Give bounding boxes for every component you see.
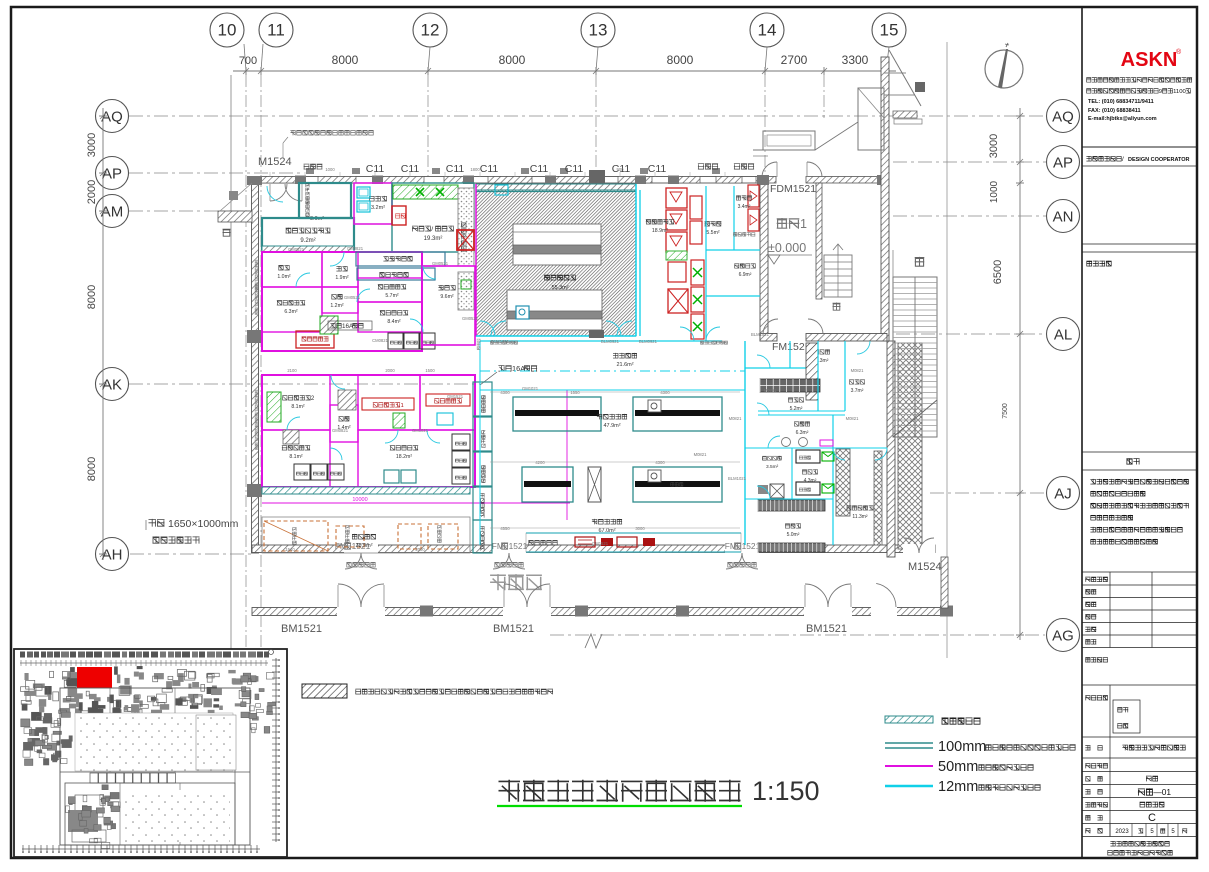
svg-text:8000: 8000: [86, 457, 98, 481]
svg-text:AN: AN: [1053, 209, 1074, 226]
svg-text:16A: 16A: [512, 364, 525, 373]
svg-text:C11: C11: [530, 163, 549, 175]
svg-text:3.4m²: 3.4m²: [738, 204, 751, 210]
svg-text:C11: C11: [565, 163, 584, 175]
svg-text:M1524: M1524: [908, 561, 942, 573]
svg-text:5.7m²: 5.7m²: [385, 293, 399, 299]
svg-text:11: 11: [267, 21, 285, 40]
svg-text:12mm: 12mm: [938, 779, 978, 795]
svg-text:C11: C11: [480, 163, 499, 175]
svg-text:BM1521: BM1521: [281, 623, 322, 635]
svg-text:18.9m²: 18.9m²: [652, 228, 668, 234]
svg-text:7500: 7500: [1002, 403, 1009, 419]
svg-text:9.2m²: 9.2m²: [300, 238, 315, 244]
svg-text:/: /: [1122, 156, 1124, 163]
svg-text:1000: 1000: [989, 180, 1000, 203]
svg-text:10000: 10000: [352, 497, 367, 503]
svg-text:BLM1021: BLM1021: [728, 476, 747, 481]
svg-text:8.4m²: 8.4m²: [387, 319, 401, 325]
svg-text:28.9m²: 28.9m²: [355, 543, 372, 549]
svg-text:AJ: AJ: [1054, 486, 1072, 503]
svg-text:1:150: 1:150: [752, 776, 820, 806]
svg-text:AL: AL: [1054, 327, 1072, 344]
svg-text:AQ: AQ: [101, 109, 123, 126]
svg-text:4200: 4200: [535, 460, 545, 465]
svg-text:GM1521: GM1521: [447, 394, 464, 399]
svg-text:4300: 4300: [660, 390, 670, 395]
svg-text:3000: 3000: [988, 134, 1000, 158]
svg-text:8.1m²: 8.1m²: [291, 404, 305, 410]
svg-text:M0821: M0821: [846, 416, 859, 421]
svg-text:6.3m²: 6.3m²: [284, 309, 298, 315]
svg-text:4300: 4300: [500, 390, 510, 395]
svg-text:8000: 8000: [667, 53, 694, 67]
svg-text:1.9m²: 1.9m²: [335, 275, 349, 281]
svg-text:10: 10: [218, 21, 237, 40]
svg-text:19.3m²: 19.3m²: [424, 236, 443, 242]
svg-text:1650×1000mm: 1650×1000mm: [168, 518, 239, 530]
svg-text:/: /: [431, 226, 433, 233]
svg-text:FAX: (010) 68838411: FAX: (010) 68838411: [1088, 108, 1141, 114]
svg-text:1550: 1550: [570, 390, 580, 395]
svg-text:2000: 2000: [385, 368, 395, 373]
svg-text:GM0521: GM0521: [462, 316, 479, 321]
svg-text:8000: 8000: [499, 53, 526, 67]
svg-text:12: 12: [421, 21, 440, 40]
svg-text:ASKN: ASKN: [1121, 49, 1178, 71]
svg-text:M1524: M1524: [258, 156, 292, 168]
svg-text:1500: 1500: [425, 368, 435, 373]
svg-text:9.6m²: 9.6m²: [440, 294, 454, 300]
svg-text:18.2m²: 18.2m²: [396, 454, 412, 460]
svg-text:BM1521: BM1521: [806, 623, 847, 635]
svg-text:3.2m²: 3.2m²: [371, 205, 385, 211]
svg-text:1100: 1100: [1173, 89, 1186, 95]
svg-text:2023: 2023: [1115, 829, 1129, 835]
svg-text:±0.000: ±0.000: [768, 241, 806, 255]
svg-text:5.5m²: 5.5m²: [706, 230, 720, 236]
svg-text:2000: 2000: [86, 180, 98, 204]
svg-text:FDM1521: FDM1521: [770, 183, 816, 195]
svg-text:6.3m²: 6.3m²: [796, 430, 809, 436]
svg-text:2700: 2700: [781, 53, 808, 67]
svg-text:1540: 1540: [285, 547, 295, 552]
svg-text:1.0m²: 1.0m²: [277, 274, 291, 280]
svg-text:AP: AP: [102, 166, 122, 183]
svg-text:47.9m²: 47.9m²: [603, 423, 620, 429]
svg-text:AM: AM: [101, 204, 124, 221]
svg-text:AH: AH: [102, 547, 123, 564]
svg-text:®: ®: [1176, 48, 1182, 56]
svg-text:GM1021: GM1021: [412, 428, 429, 433]
svg-text:3000: 3000: [635, 526, 645, 531]
svg-text:DESIGN COOPERATOR: DESIGN COOPERATOR: [1128, 157, 1190, 163]
svg-text:GM0821: GM0821: [347, 246, 364, 251]
svg-text:3000: 3000: [86, 133, 98, 157]
svg-text:1800: 1800: [470, 167, 480, 172]
svg-text:3.7m²: 3.7m²: [851, 388, 864, 394]
svg-text:21.6m²: 21.6m²: [616, 362, 633, 368]
svg-text:8000: 8000: [86, 285, 98, 309]
svg-text:AQ: AQ: [1052, 109, 1074, 126]
svg-text:BLM1521: BLM1521: [751, 332, 770, 337]
svg-text:16A: 16A: [342, 323, 354, 330]
svg-text:4550: 4550: [500, 526, 510, 531]
svg-text:100mm: 100mm: [938, 739, 986, 755]
svg-text:BLM1221: BLM1221: [491, 339, 510, 344]
svg-text:C11: C11: [446, 163, 465, 175]
svg-text:1: 1: [401, 403, 404, 409]
svg-text:11.3m²: 11.3m²: [852, 514, 868, 520]
svg-text:14: 14: [758, 21, 777, 40]
svg-text:1521: 1521: [509, 541, 528, 551]
svg-text:CM0821: CM0821: [372, 338, 388, 343]
svg-text:GM0521: GM0521: [344, 295, 361, 300]
svg-text:BLM0921: BLM0921: [639, 339, 658, 344]
svg-text:5.0m²: 5.0m²: [787, 532, 800, 538]
svg-text:900: 900: [617, 167, 625, 172]
svg-text:4300: 4300: [655, 460, 665, 465]
svg-text:C: C: [1148, 812, 1156, 824]
svg-text:9: 9: [1159, 89, 1162, 95]
svg-text:4.3m²: 4.3m²: [804, 478, 817, 484]
svg-text:BM1521: BM1521: [493, 623, 534, 635]
svg-text:M0821: M0821: [764, 388, 777, 393]
svg-text:C11: C11: [648, 163, 667, 175]
svg-text:2000: 2000: [415, 547, 425, 552]
svg-text:M0821: M0821: [729, 416, 742, 421]
svg-text:TEL: (010) 68834711/9411: TEL: (010) 68834711/9411: [1088, 99, 1154, 105]
svg-text:E-mail:hjbtkx@aliyun.com: E-mail:hjbtkx@aliyun.com: [1088, 116, 1157, 122]
svg-text:GM1521: GM1521: [592, 541, 609, 546]
svg-text:2100: 2100: [287, 368, 297, 373]
svg-text:GM1021: GM1021: [522, 386, 539, 391]
svg-text:AK: AK: [102, 377, 122, 394]
svg-text:3.5m²: 3.5m²: [766, 464, 779, 470]
svg-text:M0821: M0821: [851, 368, 864, 373]
svg-text:8000: 8000: [332, 53, 359, 67]
svg-text:1000: 1000: [325, 167, 335, 172]
svg-text:M0821: M0821: [694, 452, 707, 457]
svg-text:13: 13: [589, 21, 608, 40]
svg-text:GM0821: GM0821: [288, 247, 305, 252]
svg-text:AP: AP: [1053, 155, 1073, 172]
svg-text:50mm: 50mm: [938, 759, 978, 775]
svg-text:6500: 6500: [992, 260, 1004, 284]
svg-text:AG: AG: [1052, 628, 1074, 645]
svg-text:GM0821: GM0821: [332, 428, 349, 433]
svg-text:GM0521: GM0521: [432, 261, 449, 266]
svg-text:3300: 3300: [842, 53, 869, 67]
svg-text:8.1m²: 8.1m²: [289, 454, 303, 460]
svg-text:55.3m²: 55.3m²: [551, 285, 568, 291]
svg-text:1.2m²: 1.2m²: [330, 303, 344, 309]
svg-text:FM152: FM152: [772, 341, 805, 353]
svg-text:700: 700: [239, 55, 257, 67]
svg-text:1: 1: [800, 217, 807, 231]
svg-text:6.9m²: 6.9m²: [739, 272, 752, 278]
svg-text:15: 15: [880, 21, 899, 40]
svg-text:—01: —01: [1153, 787, 1171, 797]
svg-text:BLM0921: BLM0921: [601, 339, 620, 344]
